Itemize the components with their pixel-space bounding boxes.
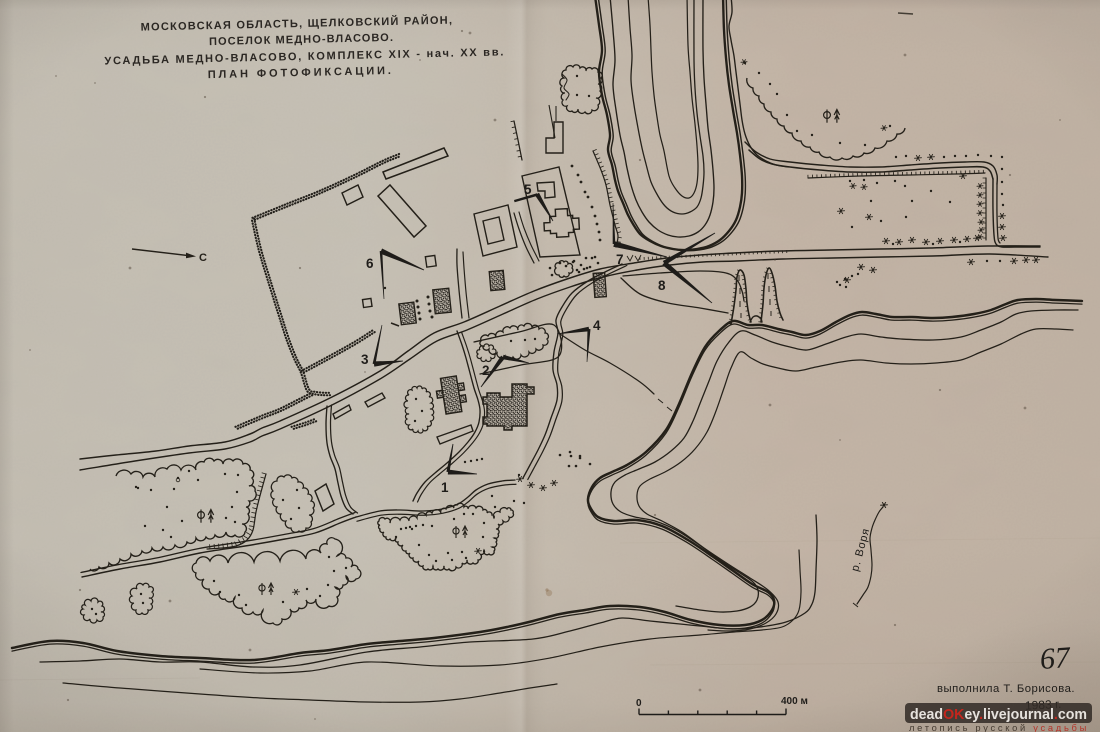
svg-text:6: 6: [366, 256, 374, 271]
svg-text:летопись русской усадьбы: летопись русской усадьбы: [909, 723, 1089, 732]
svg-text:4: 4: [593, 318, 601, 333]
svg-text:67: 67: [1039, 641, 1073, 676]
svg-text:deadOKey.livejournal.com: deadOKey.livejournal.com: [910, 706, 1087, 723]
svg-text:400 м: 400 м: [781, 696, 808, 707]
svg-text:7: 7: [616, 252, 624, 267]
svg-text:С: С: [199, 252, 207, 264]
svg-text:8: 8: [658, 278, 666, 293]
svg-text:1: 1: [441, 480, 449, 495]
svg-text:3: 3: [361, 352, 369, 367]
svg-text:0: 0: [636, 698, 642, 709]
svg-text:5: 5: [524, 182, 532, 197]
svg-text:выполнила Т. Борисова.: выполнила Т. Борисова.: [937, 683, 1075, 695]
svg-text:2: 2: [482, 363, 490, 378]
